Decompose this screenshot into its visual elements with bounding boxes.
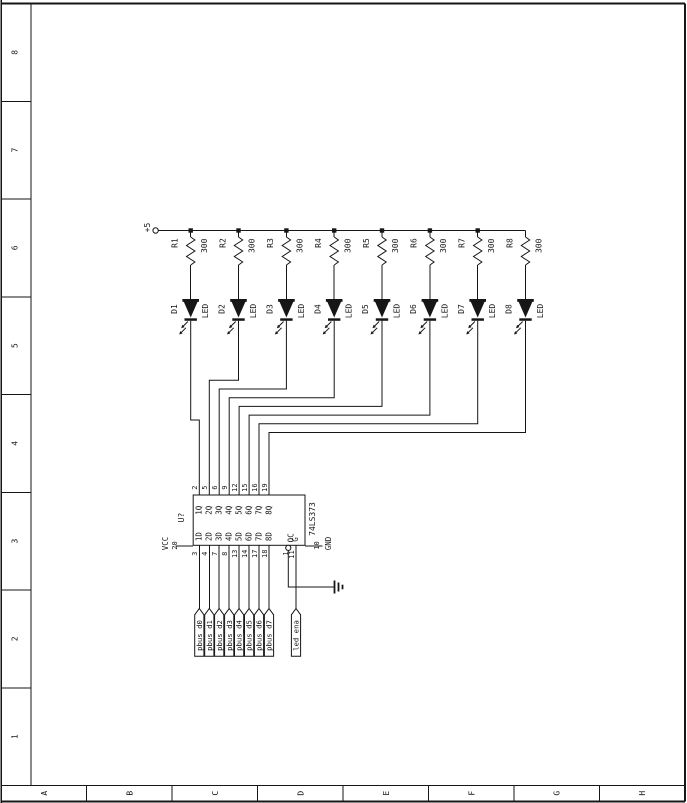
pin-number: 9: [221, 485, 229, 489]
net-flag-pbus_d4: pbus_d4: [235, 609, 244, 657]
schematic-page: 87654321ABCDEFGH+5R1300D1LEDR2300D2LEDR3…: [0, 0, 687, 803]
net-flag-pbus_d1: pbus_d1: [205, 609, 214, 657]
pin-label: 2D: [205, 532, 214, 542]
led-type-label: LED: [392, 304, 401, 319]
led-cathode-bar: [280, 318, 292, 321]
pin-label: 6Q: [245, 505, 254, 515]
led-cathode-bar: [519, 318, 531, 321]
pin-label: 6D: [245, 532, 254, 542]
net-flag-label: pbus_d4: [235, 620, 244, 651]
resistor-value-label: 300: [535, 238, 544, 253]
pin-label: 4D: [225, 532, 234, 542]
pin-number: 10: [313, 541, 321, 549]
resistor-ref-label: R5: [362, 238, 371, 248]
pin-number: 15: [241, 483, 249, 491]
pin-label: 3D: [215, 532, 224, 542]
grid-row-label: 6: [11, 245, 20, 250]
net-flag-label: pbus_d1: [205, 620, 214, 651]
grid-row-label: 8: [11, 50, 20, 55]
led-cathode-bar: [424, 318, 436, 321]
pin-number: 3: [191, 552, 199, 556]
net-flag-label: pbus_d7: [265, 620, 274, 651]
resistor-value-label: 300: [439, 238, 448, 253]
led-anode-bar: [182, 299, 199, 302]
pin-number: 12: [231, 483, 239, 491]
led-cathode-bar: [328, 318, 340, 321]
pin-number: 8: [221, 552, 229, 556]
net-flag-pbus_d0: pbus_d0: [195, 609, 204, 657]
pin-label: G: [291, 537, 300, 542]
led-type-label: LED: [345, 304, 354, 319]
led-anode-bar: [469, 299, 486, 302]
pin-label: 4Q: [225, 505, 234, 515]
inversion-bubble-icon: [286, 545, 291, 550]
resistor-value-label: 300: [248, 238, 257, 253]
net-flag-pbus_d3: pbus_d3: [225, 609, 234, 657]
pin-label: 5D: [235, 532, 244, 542]
resistor-value-label: 300: [391, 238, 400, 253]
pin-label: 2Q: [205, 505, 214, 515]
led-ref-label: D6: [409, 304, 418, 314]
grid-row-label: 4: [11, 441, 20, 446]
grid-row-label: 5: [11, 343, 20, 348]
led-anode-bar: [278, 299, 295, 302]
resistor-value-label: 300: [487, 238, 496, 253]
pin-label: 1D: [195, 532, 204, 542]
led-type-label: LED: [536, 304, 545, 319]
pin-label: VCC: [161, 537, 170, 551]
led-ref-label: D2: [218, 304, 227, 314]
led-anode-bar: [422, 299, 439, 302]
pin-number: 19: [261, 483, 269, 491]
led-ref-label: D1: [170, 304, 179, 314]
led-type-label: LED: [297, 304, 306, 319]
net-flag-label: pbus_d0: [195, 620, 204, 651]
pin-label: 8Q: [264, 505, 273, 515]
led-type-label: LED: [249, 304, 258, 319]
pin-number: 7: [211, 552, 219, 556]
pin-number: 17: [251, 550, 259, 558]
sheet-background: [0, 0, 687, 803]
pin-label: 7Q: [254, 505, 263, 515]
pin-number: 20: [171, 541, 179, 549]
pin-number: 5: [201, 485, 209, 489]
led-cathode-bar: [472, 318, 484, 321]
resistor-ref-label: R6: [410, 238, 419, 248]
grid-col-label: H: [638, 791, 647, 796]
resistor-value-label: 300: [200, 238, 209, 253]
ic-refdes: U?: [177, 513, 186, 523]
net-flag-label: led_ena: [292, 620, 301, 651]
pin-number: 13: [231, 550, 239, 558]
led-anode-bar: [517, 299, 534, 302]
grid-col-label: F: [467, 791, 476, 796]
power-label: +5: [143, 223, 152, 233]
led-cathode-bar: [376, 318, 388, 321]
led-ref-label: D8: [505, 304, 514, 314]
pin-number: 18: [261, 550, 269, 558]
supply-terminal-icon: [153, 228, 158, 233]
led-ref-label: D7: [457, 304, 466, 314]
grid-row-label: 2: [11, 636, 20, 641]
led-cathode-bar: [185, 318, 197, 321]
resistor-ref-label: R8: [505, 238, 514, 248]
pin-label: 8D: [264, 532, 273, 542]
pin-number: 6: [211, 485, 219, 489]
resistor-ref-label: R7: [458, 238, 467, 248]
led-ref-label: D4: [313, 304, 322, 314]
schematic-canvas: 87654321ABCDEFGH+5R1300D1LEDR2300D2LEDR3…: [0, 0, 687, 803]
net-flag-pbus_d5: pbus_d5: [245, 609, 254, 657]
pin-number: 2: [191, 485, 199, 489]
pin-label: 7D: [254, 532, 263, 542]
grid-col-label: B: [125, 791, 134, 796]
pin-number: 16: [251, 483, 259, 491]
pin-label: 5Q: [235, 505, 244, 515]
resistor-ref-label: R2: [218, 238, 227, 248]
resistor-ref-label: R3: [266, 238, 275, 248]
resistor-ref-label: R4: [314, 238, 323, 248]
net-flag-pbus_d2: pbus_d2: [215, 609, 224, 657]
net-flag-label: pbus_d2: [215, 620, 224, 651]
net-flag-pbus_d7: pbus_d7: [264, 609, 273, 657]
pin-number: 4: [201, 552, 209, 556]
net-flag-led-ena: led_ena: [291, 609, 300, 657]
resistor-ref-label: R1: [171, 238, 180, 248]
led-ref-label: D3: [266, 304, 275, 314]
resistor-value-label: 300: [343, 238, 352, 253]
grid-col-label: A: [40, 791, 49, 796]
net-flag-label: pbus_d3: [225, 620, 234, 651]
grid-col-label: C: [211, 791, 220, 796]
pin-label: 3Q: [215, 505, 224, 515]
led-cathode-bar: [232, 318, 244, 321]
pin-number: 14: [241, 550, 249, 558]
resistor-value-label: 300: [296, 238, 305, 253]
grid-row-label: 1: [11, 734, 20, 739]
pin-label: GND: [324, 536, 333, 550]
grid-col-label: E: [382, 791, 391, 796]
led-anode-bar: [374, 299, 391, 302]
net-flag-label: pbus_d6: [255, 620, 264, 651]
grid-row-label: 7: [11, 148, 20, 153]
net-flag-label: pbus_d5: [245, 620, 254, 651]
ic-part-number: 74LS373: [308, 502, 317, 536]
led-anode-bar: [230, 299, 247, 302]
grid-row-label: 3: [11, 539, 20, 544]
net-flag-pbus_d6: pbus_d6: [254, 609, 263, 657]
pin-label: 1Q: [195, 505, 204, 515]
led-type-label: LED: [201, 304, 210, 319]
led-anode-bar: [326, 299, 343, 302]
grid-col-label: G: [553, 791, 562, 796]
led-type-label: LED: [488, 304, 497, 319]
grid-col-label: D: [296, 791, 305, 796]
led-ref-label: D5: [361, 304, 370, 314]
led-type-label: LED: [440, 304, 449, 319]
pin-number: 11: [288, 550, 296, 558]
